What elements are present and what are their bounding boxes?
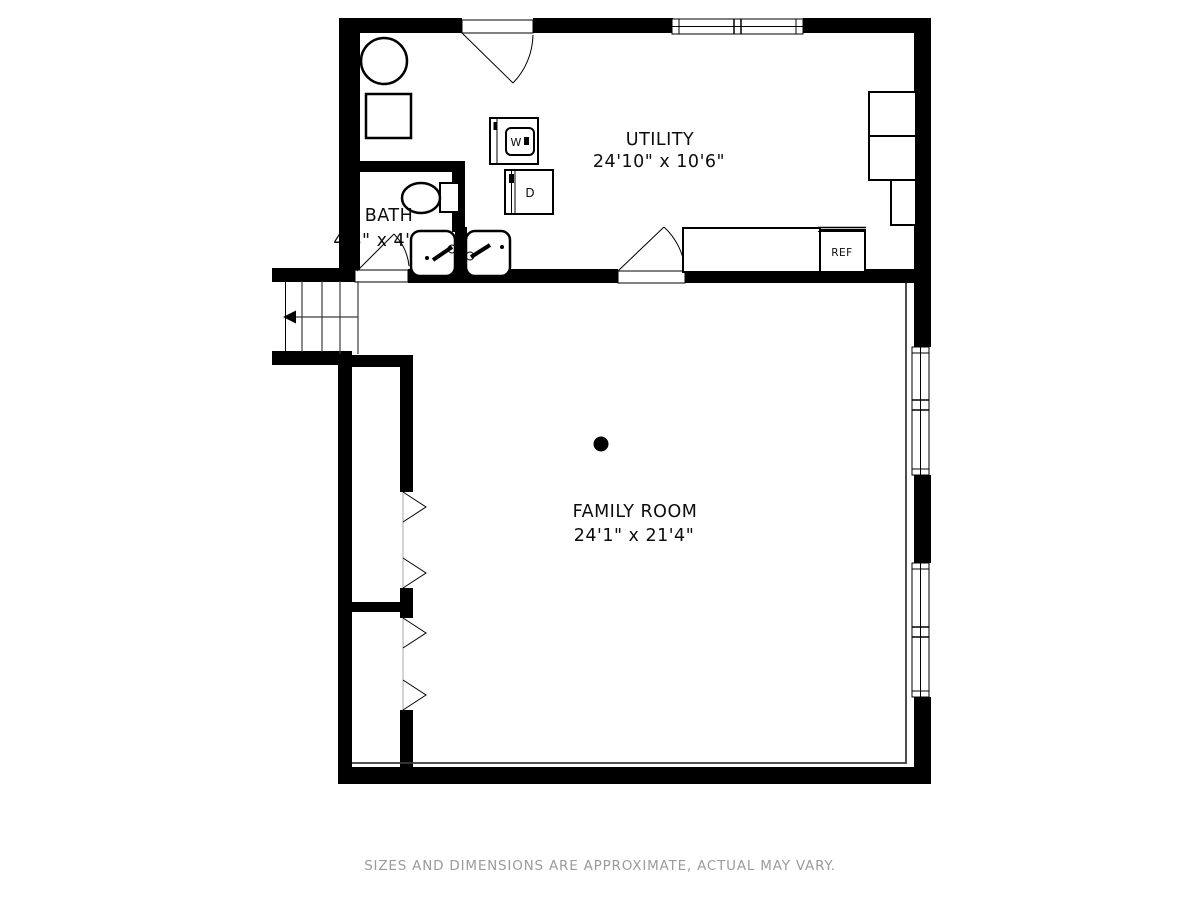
bath-sink-icon — [411, 231, 456, 276]
door-leaf — [618, 227, 664, 271]
support-post — [594, 437, 609, 452]
washer-label: W — [511, 136, 522, 149]
bifold-chevron — [403, 680, 426, 710]
family-room-inner-outline — [352, 283, 906, 763]
washer-knob — [494, 122, 498, 130]
utility-sink-icon — [466, 231, 510, 276]
bifold-chevron — [403, 492, 426, 522]
wall — [803, 18, 931, 33]
right-window-upper — [912, 347, 929, 475]
family-room-left-wall — [338, 351, 352, 783]
bath-top-wall — [339, 161, 465, 172]
washer-latch — [524, 137, 529, 145]
door-arc — [664, 227, 685, 269]
bifold-chevron — [403, 618, 426, 648]
door-leaf — [462, 33, 513, 83]
door-arc — [513, 35, 533, 83]
dryer-label: D — [525, 186, 534, 200]
closet-right-wall — [400, 710, 413, 767]
counter — [683, 228, 820, 272]
utility-room-label: UTILITY — [626, 130, 694, 150]
cabinets — [869, 92, 916, 225]
closet-middle-wall — [338, 602, 413, 612]
wall — [338, 767, 931, 784]
stairs-direction-arrow — [283, 311, 296, 324]
floor-plan: 4'8" x 4'5" — [0, 0, 1200, 900]
sink-drain — [425, 256, 429, 260]
family-room-label: FAMILY ROOM — [573, 502, 698, 522]
top-door-threshold — [462, 20, 533, 33]
dryer-icon: D — [505, 170, 553, 214]
utility-door-swing — [618, 227, 685, 271]
utility-door-threshold — [618, 271, 685, 283]
utility-room-dimensions: 24'10" x 10'6" — [593, 152, 725, 172]
top-entry-door-swing — [462, 33, 533, 83]
cabinet-icon — [869, 136, 916, 180]
bifold-chevron — [403, 558, 426, 588]
cabinet-icon — [891, 180, 916, 225]
toilet-tank — [440, 183, 459, 212]
sink-basin — [411, 231, 455, 276]
washer-icon: W — [490, 118, 538, 164]
family-room-dimensions: 24'1" x 21'4" — [574, 526, 695, 546]
dryer-knob — [509, 174, 514, 183]
cabinet-icon — [869, 92, 916, 136]
water-heater-icon — [361, 38, 407, 84]
bath-door-threshold — [355, 270, 408, 282]
furnace-icon — [366, 94, 411, 138]
stair-left-post — [272, 351, 285, 365]
closet-right-wall — [400, 355, 413, 492]
counter-and-refrigerator: REF — [683, 228, 866, 273]
refrigerator-label: REF — [831, 247, 852, 259]
wall — [339, 18, 360, 282]
right-window-lower — [912, 563, 929, 697]
bath-room-label: BATH — [365, 206, 413, 226]
wall — [914, 475, 931, 563]
wall — [533, 18, 673, 33]
stair-left-post — [272, 268, 285, 282]
sink-drain — [500, 245, 504, 249]
top-window — [672, 19, 803, 34]
stairs — [283, 281, 358, 354]
footer-disclaimer: SIZES AND DIMENSIONS ARE APPROXIMATE, AC… — [0, 858, 1200, 874]
